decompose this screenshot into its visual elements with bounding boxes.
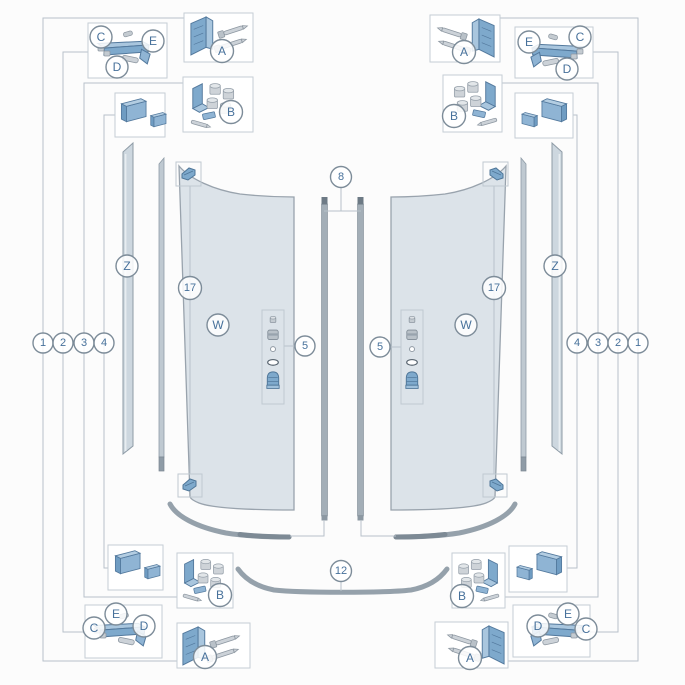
callout-1-right: 1 — [635, 337, 641, 349]
callout-d-top-left: D — [113, 60, 122, 74]
callout-a-bottom-left: A — [201, 650, 209, 664]
callout-a-top-left: A — [218, 44, 226, 58]
seal-strip-right-cap — [521, 457, 526, 471]
diagram-canvas: C E D A B A E C D B Z Z 17 17 W W 5 5 8 … — [0, 0, 685, 685]
callout-2-left: 2 — [60, 337, 66, 349]
magnet-strip-left — [322, 204, 328, 516]
callout-c-bottom-left: C — [90, 621, 99, 635]
magnet-strip-right — [358, 204, 364, 516]
callout-3-left: 3 — [81, 337, 87, 349]
callout-z-left: Z — [123, 259, 130, 273]
callout-5-right: 5 — [377, 341, 383, 353]
callout-d-bottom-right: D — [534, 619, 543, 633]
callout-z-right: Z — [551, 259, 558, 273]
seal-strip-left-cap — [159, 457, 164, 471]
callout-e-top-left: E — [149, 34, 157, 48]
callout-b-bottom-left: B — [216, 588, 224, 602]
parts-diagram: C E D A B A E C D B Z Z 17 17 W W 5 5 8 … — [0, 0, 685, 685]
callout-17-right: 17 — [488, 282, 500, 294]
callout-a-bottom-right: A — [466, 651, 474, 665]
callout-4-left: 4 — [101, 337, 107, 349]
callout-2-right: 2 — [615, 337, 621, 349]
callout-e-bottom-left: E — [112, 607, 120, 621]
callout-b-top-right: B — [450, 109, 458, 123]
wall-profile-right — [552, 143, 562, 454]
callout-b-top-left: B — [227, 105, 235, 119]
callout-w-left: W — [212, 318, 224, 332]
curved-rail-right-end — [396, 535, 445, 538]
seal-strip-right — [521, 158, 526, 457]
callout-d-top-right: D — [563, 62, 572, 76]
callout-8: 8 — [338, 171, 344, 183]
magnet-strip-right-foot — [358, 515, 364, 521]
magnet-strip-left-foot — [322, 515, 328, 521]
callout-d-bottom-left: D — [140, 619, 149, 633]
callout-17-left: 17 — [184, 282, 196, 294]
callout-5-left: 5 — [302, 340, 308, 352]
callout-4-right: 4 — [574, 337, 580, 349]
callout-b-bottom-right: B — [458, 589, 466, 603]
callout-w-right: W — [460, 318, 472, 332]
callout-c-top-left: C — [97, 30, 106, 44]
magnet-strip-left-cap — [322, 197, 328, 205]
wall-profile-left — [123, 143, 133, 454]
callout-c-top-right: C — [576, 30, 585, 44]
magnet-strip-right-cap — [358, 197, 364, 205]
callout-e-bottom-right: E — [564, 607, 572, 621]
callout-12: 12 — [335, 565, 347, 577]
callout-e-top-right: E — [525, 35, 533, 49]
seal-strip-left — [159, 158, 164, 457]
curved-rail-left-end — [240, 535, 289, 538]
callout-1-left: 1 — [40, 337, 46, 349]
callout-a-top-right: A — [460, 45, 468, 59]
callout-c-bottom-right: C — [582, 622, 591, 636]
callout-3-right: 3 — [595, 337, 601, 349]
